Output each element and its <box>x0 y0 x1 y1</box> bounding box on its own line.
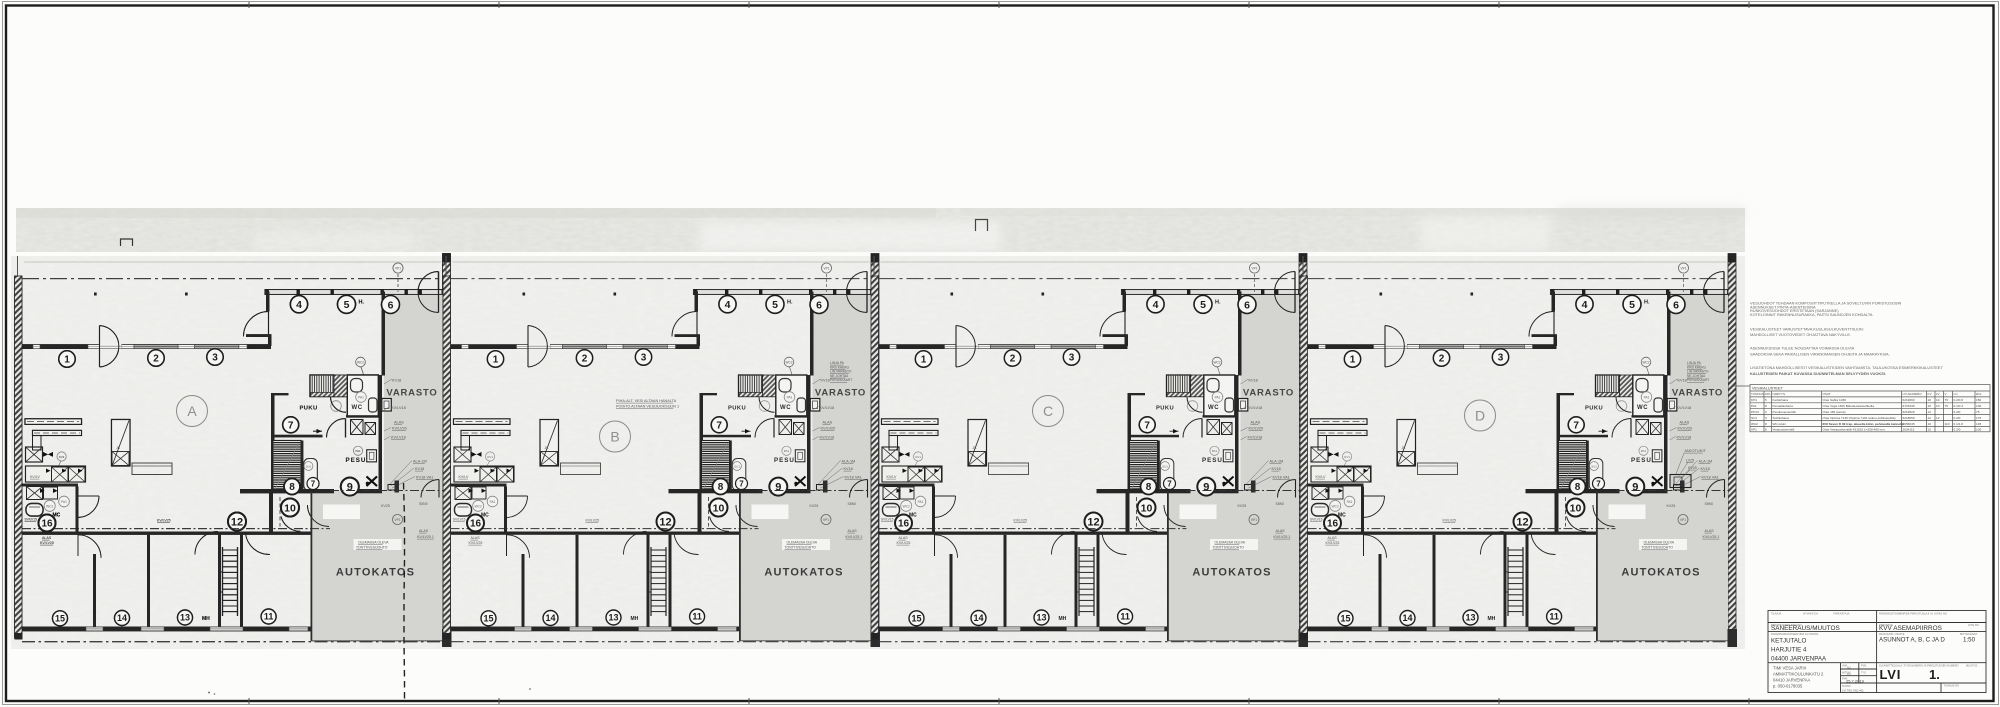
svg-text:LVI-NUMERO: LVI-NUMERO <box>1903 392 1923 396</box>
svg-text:KALUSTEIDEN PAIKAT KUVASSA SUU: KALUSTEIDEN PAIKAT KUVASSA SUUNNITELMAN … <box>1750 371 1886 376</box>
svg-text:HARJUTIE 4: HARJUTIE 4 <box>1771 647 1807 654</box>
svg-text:HYVAKSYJA: HYVAKSYJA <box>1803 612 1818 616</box>
svg-text:IDO Seven D 39 trap, alueelta: IDO Seven D 39 trap, alueelta kiinn. peh… <box>1823 422 1904 426</box>
svg-text:POISTO ALTAAN VESIJUOKSUUN 1: POISTO ALTAAN VESIJUOKSUUN 1 <box>616 405 679 409</box>
svg-text:A: A <box>187 403 197 419</box>
svg-text:8: 8 <box>1765 404 1767 408</box>
svg-text:PIHA-ALT. VESI ALTAAN HANALTA: PIHA-ALT. VESI ALTAAN HANALTA <box>616 399 677 403</box>
svg-text:MITTAKAAVAT: MITTAKAAVAT <box>1960 632 1978 636</box>
svg-text:SANEERAUS/MUUTOS: SANEERAUS/MUUTOS <box>1771 625 1840 632</box>
svg-text:Suihkuhana: Suihkuhana <box>1773 416 1790 420</box>
svg-text:WC-istuin: WC-istuin <box>1773 422 1787 426</box>
svg-text:Oras 182 (seina): Oras 182 (seina) <box>1823 410 1846 414</box>
svg-text:2: 2 <box>1765 410 1767 414</box>
svg-text:Pesukoneventtiili: Pesukoneventtiili <box>1773 410 1797 414</box>
svg-text:TYO: TYO <box>1861 672 1866 675</box>
svg-text:VP1: VP1 <box>1751 428 1757 432</box>
svg-text:KETJUTALO: KETJUTALO <box>1771 638 1806 645</box>
svg-text:6715430: 6715430 <box>1903 404 1915 408</box>
svg-text:Vesipostiventtiili: Vesipostiventtiili <box>1773 428 1795 432</box>
svg-text:B: B <box>610 428 619 444</box>
svg-text:8: 8 <box>1765 428 1767 432</box>
svg-text:Keittiohana: Keittiohana <box>1773 398 1789 402</box>
svg-text:6219520: 6219520 <box>1903 410 1915 414</box>
svg-text:C: C <box>1043 403 1053 419</box>
svg-text:RAKENNUSKOHTEEN NIMI JA OSOITE: RAKENNUSKOHTEEN NIMI JA OSOITE <box>1771 632 1819 636</box>
svg-text:ASUNNOT A, B, C JA D: ASUNNOT A, B, C JA D <box>1879 637 1945 644</box>
svg-text:D: D <box>1475 407 1485 423</box>
svg-text:MAHDOLLISET VUOTOVEDET OHJATTA: MAHDOLLISET VUOTOVEDET OHJATTAVA NAKYVIL… <box>1750 332 1851 337</box>
svg-text:TIMI VESA JARVI: TIMI VESA JARVI <box>1773 666 1806 671</box>
svg-text:75: 75 <box>1976 410 1980 414</box>
svg-text:150: 150 <box>1976 398 1981 402</box>
svg-text:1:50: 1:50 <box>1963 637 1976 644</box>
svg-text:6218050: 6218050 <box>1903 416 1915 420</box>
svg-text:Pesuallashana: Pesuallashana <box>1773 404 1794 408</box>
svg-text:RAKENNUSTOIMENPIDE PIIRUSTUSLA: RAKENNUSTOIMENPIDE PIIRUSTUSLAJI JA JUOK… <box>1879 612 1947 616</box>
svg-text:AMMATTIKOULUNKATU 2: AMMATTIKOULUNKATU 2 <box>1773 672 1824 677</box>
svg-text:0.2/0: 0.2/0 <box>1954 428 1961 432</box>
svg-text:VESIKALUSTEET: VESIKALUSTEET <box>1752 386 1783 390</box>
svg-text:PVM: PVM <box>1861 665 1866 668</box>
svg-text:5: 5 <box>1765 398 1767 402</box>
svg-text:SAADOKSIA SEKA PAIKALLISEN VIR: SAADOKSIA SEKA PAIKALLISEN VIRANOMAISEN … <box>1750 351 1890 356</box>
svg-text:0.1/1.8: 0.1/1.8 <box>1954 422 1964 426</box>
svg-text:10: 10 <box>1928 422 1932 426</box>
svg-text:PERUSKAART: PERUSKAART <box>830 378 852 382</box>
svg-text:TILAAJA: TILAAJA <box>1771 612 1782 616</box>
svg-text:10: 10 <box>1936 404 1940 408</box>
svg-text:10: 10 <box>1936 398 1940 402</box>
svg-text:1.: 1. <box>1929 667 1940 682</box>
svg-text:145: 145 <box>1976 422 1981 426</box>
svg-text:75: 75 <box>1945 404 1949 408</box>
svg-text:LISATIETONA MAHDOLLISESTI VESI: LISATIETONA MAHDOLLISESTI VESIKALUSTEIDE… <box>1750 365 1943 370</box>
svg-text:ASENNUKSISSA TULEE NOUDATTAA V: ASENNUKSISSA TULEE NOUDATTAA VOIMASSA OL… <box>1750 346 1855 351</box>
svg-text:0.2/0: 0.2/0 <box>1954 410 1961 414</box>
svg-text:JAKOTUKIT: JAKOTUKIT <box>1684 448 1707 453</box>
svg-text:04410 JARVENPAA: 04410 JARVENPAA <box>1773 678 1811 683</box>
svg-text:12: 12 <box>1936 416 1940 420</box>
svg-text:KV25: KV25 <box>1688 466 1697 470</box>
svg-text:Oras Optima 7149 (Optima 7191: Oras Optima 7149 (Optima 7191 tanko+suih… <box>1823 416 1896 420</box>
svg-text:L/s: L/s <box>1954 392 1959 396</box>
svg-text:LV25: LV25 <box>1686 459 1694 463</box>
svg-text:MUUTOS: MUUTOS <box>1966 664 1977 668</box>
svg-text:Oras Vega 1815 Bidetta-kasisui: Oras Vega 1815 Bidetta-kasisuihkulla <box>1823 404 1875 408</box>
svg-text:TUNNUS: TUNNUS <box>1751 392 1764 396</box>
svg-text:PKV2: PKV2 <box>1751 410 1759 414</box>
svg-text:100: 100 <box>1976 428 1981 432</box>
svg-text:SU1: SU1 <box>1751 416 1757 420</box>
svg-text:Oras Vesipostiventtiili 431015: Oras Vesipostiventtiili 431015 L=250-400… <box>1823 428 1886 432</box>
svg-text:6219063: 6219063 <box>1903 398 1915 402</box>
svg-text:130: 130 <box>1976 404 1981 408</box>
svg-text:LVI: LVI <box>1880 667 1902 682</box>
svg-text:3656045: 3656045 <box>1903 422 1915 426</box>
svg-text:175: 175 <box>1976 416 1981 420</box>
svg-text:WC2: WC2 <box>1751 422 1758 426</box>
svg-text:KVV ASEMAPIIRROS: KVV ASEMAPIIRROS <box>1879 625 1942 632</box>
svg-text:Oras Safira 1039: Oras Safira 1039 <box>1823 398 1847 402</box>
svg-text:12: 12 <box>1928 416 1932 420</box>
svg-text:p. 050-0178035: p. 050-0178035 <box>1773 684 1803 689</box>
svg-text:KH1: KH1 <box>1751 398 1757 402</box>
svg-text:NIMITYS: NIMITYS <box>1773 392 1786 396</box>
svg-text:0.1/0.3: 0.1/0.3 <box>1954 404 1964 408</box>
svg-text:0.2/0: 0.2/0 <box>1954 416 1961 420</box>
svg-text:OSAT: OSAT <box>1823 392 1831 396</box>
svg-text:VJ: VJ <box>1847 672 1851 676</box>
svg-text:PA1: PA1 <box>1751 404 1757 408</box>
svg-text:2634115: 2634115 <box>1903 428 1915 432</box>
svg-text:LVI.TEK.SNJ.401: LVI.TEK.SNJ.401 <box>1842 689 1864 693</box>
svg-text:KOTELOINNIT RAKENNUSURAKKA, PA: KOTELOINNIT RAKENNUSURAKKA, PAITSI SAUNO… <box>1750 312 1873 317</box>
svg-text:8: 8 <box>1765 422 1767 426</box>
svg-text:12: 12 <box>1928 410 1932 414</box>
svg-text:LIITE NO: LIITE NO <box>1968 623 1979 627</box>
svg-text:04400 JARVENPAA: 04400 JARVENPAA <box>1771 656 1827 663</box>
svg-text:110: 110 <box>1945 422 1950 426</box>
svg-text:25.7.2019: 25.7.2019 <box>1846 678 1865 683</box>
svg-text:10: 10 <box>1928 404 1932 408</box>
svg-text:TARKASTAJA: TARKASTAJA <box>1833 612 1850 616</box>
svg-text:75: 75 <box>1945 398 1949 402</box>
svg-text:0.2/0.8: 0.2/0.8 <box>1954 398 1964 402</box>
svg-text:kPa: kPa <box>1976 392 1982 396</box>
svg-text:3: 3 <box>1765 416 1767 420</box>
svg-text:TUNNUS NO: TUNNUS NO <box>1944 684 1959 688</box>
svg-text:PAASUUNN. OSOITE: PAASUUNN. OSOITE <box>1879 632 1905 636</box>
svg-text:VJ: VJ <box>1847 665 1851 669</box>
svg-text:PERUSKAART: PERUSKAART <box>1687 378 1709 382</box>
svg-text:VESIKALUSTEET VARUSTETTAVA KUU: VESIKALUSTEET VARUSTETTAVA KUULASULKUVEN… <box>1750 327 1864 332</box>
svg-text:10: 10 <box>1928 398 1932 402</box>
svg-text:KPL: KPL <box>1765 392 1771 396</box>
svg-text:15: 15 <box>1928 428 1932 432</box>
